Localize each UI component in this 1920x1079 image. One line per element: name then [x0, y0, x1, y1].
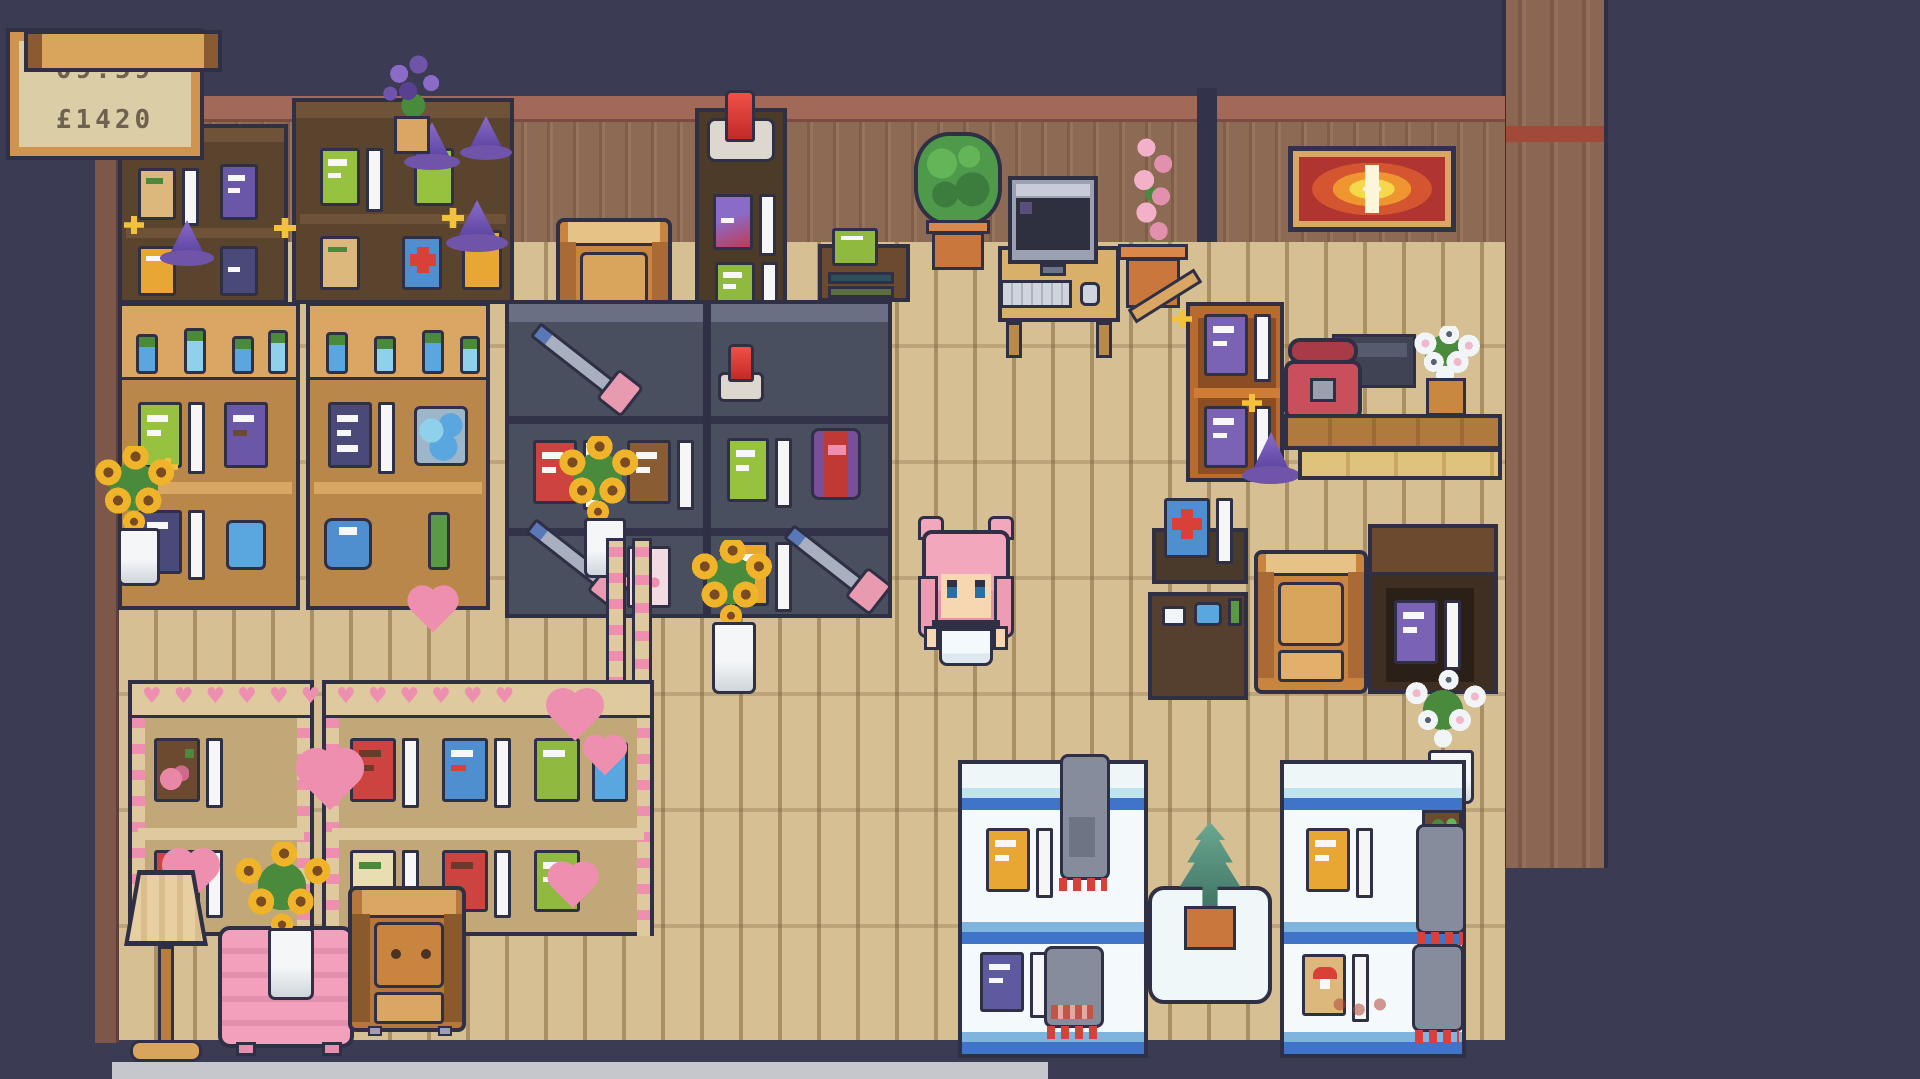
- book-stack: [828, 272, 894, 284]
- bat-creature-icon[interactable]: [811, 428, 861, 500]
- red-crystal-icon[interactable]: [725, 90, 755, 142]
- character-eye: [947, 580, 957, 598]
- lamp-shade-inner: [129, 875, 203, 941]
- pages-edge: [775, 542, 792, 612]
- armchair-right[interactable]: [1254, 550, 1368, 694]
- plant-pot: [932, 232, 984, 270]
- pages-edge: [775, 438, 792, 508]
- kettle-lid: [339, 527, 357, 535]
- book-purple[interactable]: [220, 164, 258, 220]
- fridge-top: [962, 764, 1144, 788]
- creature-claws: [1415, 1030, 1459, 1043]
- shelf-board: [314, 482, 482, 494]
- book-gold[interactable]: [986, 828, 1030, 892]
- chair-cushion: [1278, 582, 1344, 646]
- pages-edge: [759, 194, 776, 256]
- book-tan[interactable]: [138, 168, 176, 220]
- red-crystal-stand[interactable]: [716, 344, 768, 406]
- display-case[interactable]: [695, 108, 787, 322]
- player-character[interactable]: [916, 516, 1016, 668]
- desk-leg: [1096, 322, 1112, 358]
- monitor-screen: [1016, 198, 1090, 250]
- pages-edge: [206, 738, 223, 808]
- white-cup-icon: [1162, 606, 1186, 626]
- sunflowers[interactable]: [94, 446, 174, 534]
- pet-creature[interactable]: [1416, 824, 1466, 934]
- wood-bench[interactable]: [1284, 414, 1502, 450]
- heart-trim: [132, 684, 310, 718]
- shelf-board: [332, 828, 644, 840]
- pages-edge: [366, 148, 383, 212]
- blue-stripe: [962, 1042, 1144, 1054]
- table-foot: [236, 1042, 256, 1056]
- side-table-books[interactable]: [818, 244, 910, 302]
- red-crystal-icon: [728, 344, 754, 382]
- book-firstaid[interactable]: [402, 236, 442, 290]
- pine-foliage: [1172, 822, 1248, 912]
- telephone[interactable]: [1284, 338, 1364, 424]
- potion-cluster[interactable]: [414, 406, 468, 466]
- hud-money: £1420: [19, 105, 191, 135]
- book-green-flat[interactable]: [832, 228, 878, 266]
- white-bouquet[interactable]: [1396, 668, 1490, 752]
- book-tan[interactable]: [320, 236, 360, 290]
- water-line: [1284, 788, 1462, 798]
- fire-painting[interactable]: [1288, 146, 1456, 232]
- rail-cap: [204, 34, 218, 68]
- potion-bottle-icon[interactable]: [460, 336, 480, 374]
- shelf-board: [509, 416, 703, 424]
- book-navy[interactable]: [328, 402, 372, 468]
- green-bottle-icon[interactable]: [428, 512, 450, 570]
- chair-back: [1266, 554, 1356, 576]
- pages-edge: [677, 440, 694, 510]
- blue-stripe: [962, 922, 1144, 932]
- pages-edge: [1254, 314, 1271, 382]
- bat-face: [828, 445, 846, 455]
- green-bottle-icon: [1228, 598, 1242, 626]
- shelf-rail: [637, 718, 650, 936]
- phone-handset: [1288, 338, 1358, 364]
- painting-frame: [1293, 151, 1451, 227]
- computer-desk[interactable]: [998, 176, 1122, 360]
- leaf-dot: [185, 749, 194, 758]
- axe-icon[interactable]: [530, 322, 632, 408]
- fridge-top: [1284, 764, 1462, 788]
- monitor-stand: [1040, 264, 1066, 276]
- potion-bottle-icon[interactable]: [374, 336, 396, 374]
- chair-caster: [438, 1026, 452, 1036]
- potion-bottle-icon[interactable]: [326, 332, 348, 374]
- potion-bottle-icon[interactable]: [232, 336, 254, 374]
- bottom-walkway: [112, 1062, 1048, 1079]
- wizard-hat-icon[interactable]: [460, 116, 512, 160]
- water-line: [962, 788, 1144, 798]
- pages-edge: [1356, 828, 1373, 898]
- creature-belly: [1069, 817, 1095, 857]
- monitor-topbar: [1016, 184, 1090, 196]
- tome-shelf[interactable]: [1186, 302, 1284, 482]
- blue-stripe: [962, 798, 1144, 810]
- book-navy[interactable]: [220, 246, 258, 296]
- phone-keypad: [1310, 378, 1336, 402]
- book-green[interactable]: [727, 438, 769, 502]
- pet-creature[interactable]: [1412, 944, 1464, 1032]
- table-foot: [322, 1042, 342, 1056]
- rail-cap: [28, 34, 42, 68]
- book-purple[interactable]: [980, 952, 1024, 1012]
- pages-edge: [182, 168, 199, 226]
- painting-canvas: [1299, 157, 1445, 221]
- sunflowers[interactable]: [690, 540, 772, 628]
- flower-vase: [268, 928, 314, 1000]
- blue-pot-icon: [1194, 602, 1222, 626]
- creature-claws: [1059, 878, 1107, 891]
- blue-stripe: [1284, 1042, 1462, 1054]
- chair-seat-front: [1278, 650, 1344, 682]
- character-arm: [993, 626, 1008, 650]
- book-green[interactable]: [320, 148, 360, 206]
- flower-vase: [712, 622, 756, 694]
- pages-edge: [494, 738, 511, 808]
- potion-bottle-icon[interactable]: [136, 334, 158, 374]
- pages-edge: [1444, 600, 1461, 670]
- mushroom-icon: [1313, 967, 1337, 979]
- left-wall-strip: [95, 96, 119, 1043]
- book-green[interactable]: [534, 738, 580, 802]
- potion-bottle-icon[interactable]: [422, 330, 444, 374]
- topiary-foliage: [914, 132, 1002, 226]
- pages-edge: [494, 850, 511, 918]
- shelf-top-band: [711, 304, 888, 322]
- sunflowers[interactable]: [558, 436, 638, 524]
- pet-creature[interactable]: [1060, 754, 1110, 880]
- keyboard[interactable]: [1000, 280, 1072, 308]
- lavender-flowers: [380, 54, 444, 120]
- chair-arm: [444, 914, 462, 1022]
- potion-shelf-2[interactable]: [306, 302, 490, 610]
- monitor[interactable]: [1008, 176, 1098, 264]
- shelf-board: [1194, 388, 1280, 398]
- book-gold[interactable]: [1306, 828, 1350, 892]
- wall-red-band: [1506, 126, 1604, 142]
- screen-glint: [1020, 202, 1032, 214]
- armchair-bottom-left[interactable]: [348, 886, 466, 1032]
- table-top: [1368, 524, 1498, 576]
- shelf-top-band: [509, 304, 703, 322]
- chair-caster: [368, 1026, 382, 1036]
- shelf-board: [138, 828, 304, 840]
- wood-bench-low[interactable]: [1298, 448, 1502, 480]
- potion-bottle-icon[interactable]: [184, 328, 206, 374]
- book-purple-tome[interactable]: [1204, 314, 1248, 376]
- shelf-board: [711, 416, 888, 424]
- character-arm: [924, 626, 939, 650]
- potion-bottle-icon[interactable]: [268, 330, 288, 374]
- kettle-icon[interactable]: [324, 518, 372, 570]
- red-cross-icon: [1172, 518, 1202, 530]
- pages-edge: [1036, 828, 1053, 898]
- book-stack: [828, 286, 894, 298]
- character-dress: [939, 628, 993, 666]
- axe-icon[interactable]: [783, 524, 881, 606]
- plant-pot: [1184, 906, 1236, 950]
- creature-claws: [1047, 1026, 1097, 1039]
- chair-seat-front: [374, 992, 444, 1024]
- floor-lamp[interactable]: [124, 870, 208, 1062]
- chair-arm: [1348, 572, 1364, 678]
- flower-vase: [118, 528, 160, 586]
- rose-icon: [159, 765, 189, 793]
- chair-back: [568, 222, 660, 246]
- pages-edge: [188, 402, 205, 474]
- character-eye: [975, 580, 985, 598]
- book-firstaid[interactable]: [1164, 498, 1210, 558]
- book-purple[interactable]: [224, 402, 268, 468]
- pages-edge: [1216, 498, 1233, 564]
- display-fridge-left[interactable]: [958, 760, 1148, 1058]
- lavender-pot[interactable]: [380, 54, 444, 156]
- mouse[interactable]: [1080, 282, 1100, 306]
- cushion-button: [391, 949, 401, 959]
- pet-creature[interactable]: [1044, 946, 1104, 1028]
- lamp-pole: [158, 946, 174, 1044]
- heart-shelf-post: [632, 538, 652, 690]
- desk-leg: [1006, 322, 1022, 358]
- heart-shelf-post: [606, 538, 626, 690]
- firstaid-stand[interactable]: [1146, 498, 1250, 702]
- mushroom-icon: [1320, 979, 1330, 989]
- white-daisies[interactable]: [1410, 326, 1480, 384]
- fire-bolt-icon: [1365, 165, 1379, 213]
- blue-stripe: [1284, 798, 1462, 810]
- chair-arm: [352, 914, 370, 1022]
- lamp-base: [130, 1040, 202, 1062]
- sunflowers[interactable]: [230, 842, 334, 938]
- wizard-hat-icon[interactable]: [160, 220, 214, 266]
- book-blue[interactable]: [442, 738, 488, 802]
- pink-flower-spike: [1124, 136, 1180, 252]
- red-cross-icon: [410, 254, 436, 266]
- plant-pot: [394, 116, 430, 154]
- paw-prints: [1330, 994, 1394, 1020]
- blue-stripe: [962, 932, 1144, 944]
- lamp-shade: [124, 870, 208, 946]
- hud-rail: [24, 30, 222, 72]
- pages-edge: [402, 738, 419, 808]
- pages-edge: [378, 402, 395, 474]
- cushion-button: [421, 949, 431, 959]
- plant-pot: [1426, 378, 1466, 416]
- stand-lower: [1148, 592, 1248, 700]
- pine-plant[interactable]: [1172, 822, 1248, 954]
- book-roses[interactable]: [154, 738, 200, 802]
- topiary-plant[interactable]: [914, 132, 1002, 272]
- chair-arm: [1258, 572, 1274, 678]
- potion-jar-icon[interactable]: [226, 520, 266, 570]
- book-purple-tome[interactable]: [1394, 600, 1438, 664]
- chair-cushion: [374, 922, 444, 988]
- chair-back: [362, 890, 456, 918]
- pages-edge: [188, 510, 205, 580]
- creature-streak: [1051, 1005, 1093, 1019]
- book-arcane[interactable]: [713, 194, 753, 250]
- outer-wall-column: [1502, 0, 1608, 868]
- game-viewport: 09:59 £1420: [0, 0, 1920, 1079]
